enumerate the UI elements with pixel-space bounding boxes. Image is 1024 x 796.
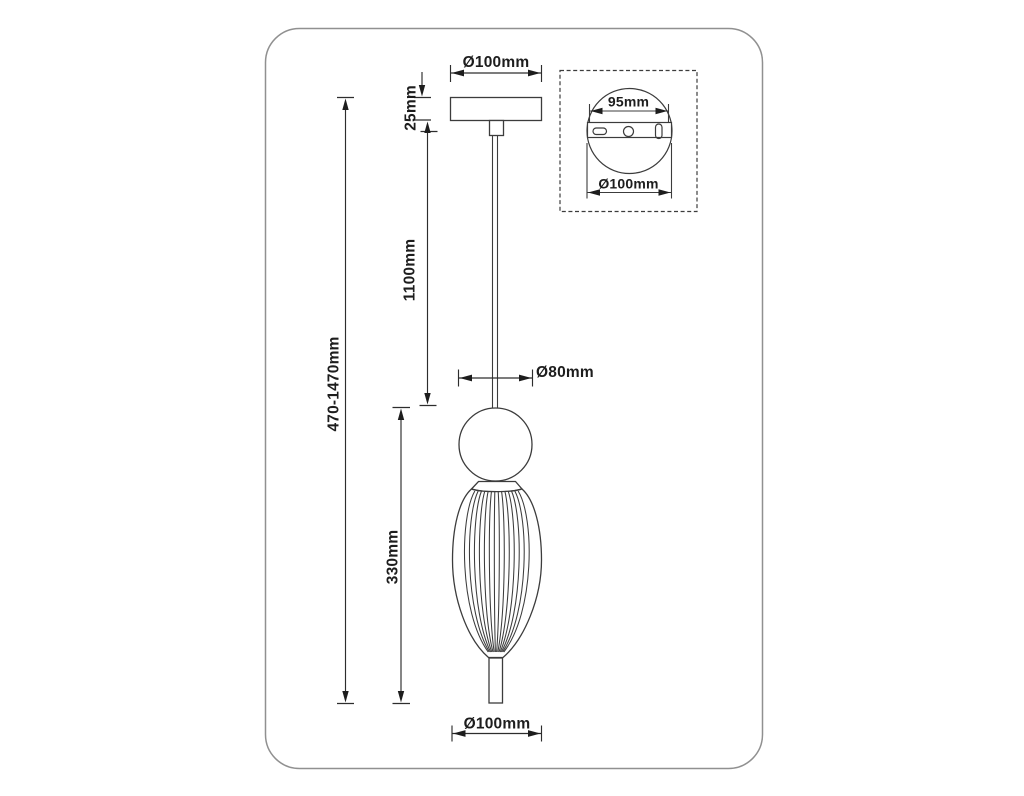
canopy-stem (490, 121, 504, 136)
ceiling-canopy (451, 98, 542, 121)
shade-height-label: 330mm (385, 530, 402, 584)
cord-length-label: 1100mm (402, 239, 419, 301)
mounting-bracket-plate (588, 123, 672, 138)
overall-height-label: 470-1470mm (326, 336, 343, 431)
canopy-diameter-label: Ø100mm (463, 54, 530, 71)
shade-diameter-label: Ø100mm (464, 716, 531, 733)
technical-drawing-page: 95mm Ø100mm (0, 0, 1024, 796)
inset-canopy-diameter-label: Ø100mm (598, 176, 658, 192)
inset-plate-width-label: 95mm (608, 94, 649, 110)
pendant-lamp-dimension-drawing: 95mm Ø100mm (0, 0, 1024, 796)
decorative-ball (459, 408, 532, 481)
bottom-stem (489, 658, 503, 703)
canopy-height-label: 25mm (403, 85, 420, 131)
ball-diameter-label: Ø80mm (536, 364, 594, 381)
